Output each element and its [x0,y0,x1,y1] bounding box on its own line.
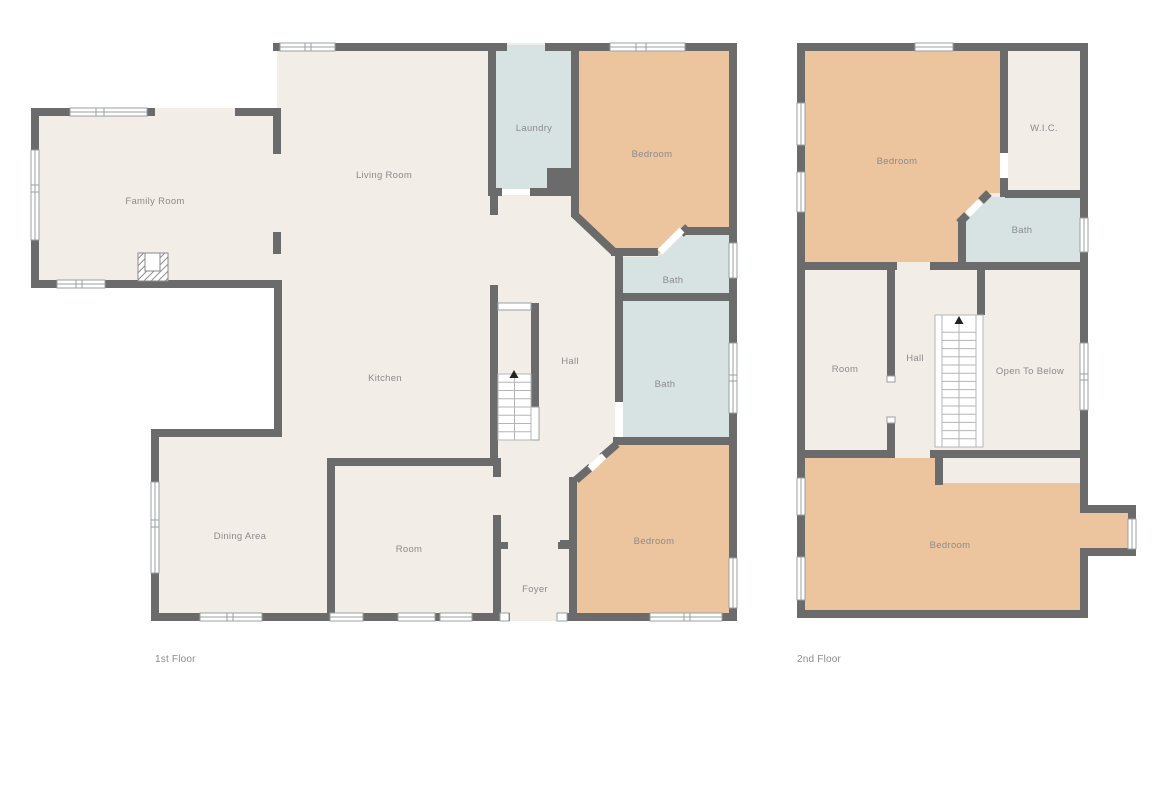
room-label-hall: Hall [561,356,579,367]
room-label-open-to-below: Open To Below [996,366,1064,377]
wic-door-opening [1000,153,1008,178]
room-door-jamb [887,417,895,423]
bath-lower-door-opening [615,402,623,437]
floor-1-caption: 1st Floor [155,654,196,665]
front-door-jamb [500,613,509,621]
bedroom-bottom-fill [577,445,735,617]
stair-open-rail [531,407,539,440]
floor-2-caption: 2nd Floor [797,654,842,665]
room-label-dining-area: Dining Area [214,531,267,542]
chimney-block [547,168,575,196]
room-label-laundry: Laundry [516,123,552,134]
floor-2-stairs [935,315,983,447]
room-label-family-room: Family Room [125,196,184,207]
room-label-foyer: Foyer [522,584,548,595]
room-label-bath-lower: Bath [655,379,676,390]
room-label-bath: Bath [1012,225,1033,236]
fireplace [138,253,168,281]
room-label-bedroom-bottom: Bedroom [634,536,675,547]
room-label-room: Room [396,544,423,555]
room-label-kitchen: Kitchen [368,373,402,384]
front-door-jamb [557,613,567,621]
bath-lower-fill [615,295,733,443]
room-label-room: Room [832,364,859,375]
room-label-bedroom-top: Bedroom [877,156,918,167]
floor-1-room-fills [31,43,737,621]
floor-2-plan: Bedroom W.I.C. Bath Room Hall Open To Be… [797,43,1136,665]
floor-1-plan: Family Room Living Room Laundry Bedroom … [31,43,737,665]
room-door-jamb [887,376,895,382]
room-label-living-room: Living Room [356,170,412,181]
stair-landing-edge [498,303,531,310]
room-label-hall: Hall [906,353,924,364]
room-label-bedroom-top: Bedroom [632,149,673,160]
room-label-bedroom-bottom: Bedroom [930,540,971,551]
room-label-wic: W.I.C. [1030,123,1058,134]
floorplan-drawing: Family Room Living Room Laundry Bedroom … [0,0,1170,785]
room-label-bath-upper: Bath [663,275,684,286]
floorplan-canvas: Family Room Living Room Laundry Bedroom … [0,0,1170,785]
laundry-door-opening [502,189,530,195]
